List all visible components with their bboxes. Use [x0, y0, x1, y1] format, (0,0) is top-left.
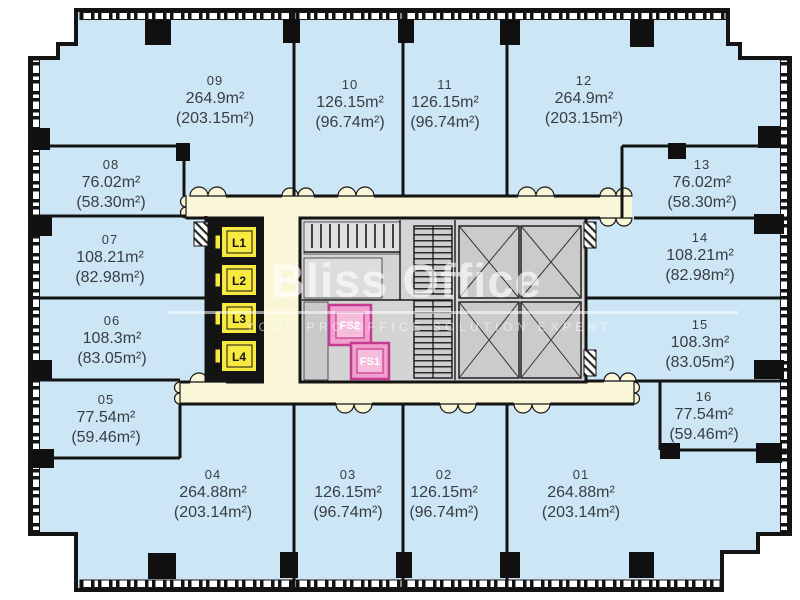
elevator-car-l1: L1: [215, 226, 257, 258]
fs2-label: FS2: [340, 320, 360, 332]
corridor-top: [186, 196, 632, 218]
l1-label: L1: [232, 236, 246, 250]
l3-label: L3: [232, 312, 246, 326]
hatched-column-bottom: [584, 350, 596, 376]
core-block: [300, 218, 596, 382]
hatched-column-top: [584, 222, 596, 248]
elevator-car-l2: L2: [215, 264, 257, 296]
elevator-car-l3: L3: [215, 302, 257, 334]
elevator-lobby: [264, 218, 300, 382]
floor-plan-drawing: FS2 FS1 L1 L2 L3: [0, 0, 800, 600]
toilet-area: [304, 222, 400, 254]
floor-plan-page: FS2 FS1 L1 L2 L3: [0, 0, 800, 600]
corridor-bottom: [180, 382, 634, 404]
l4-label: L4: [232, 350, 246, 364]
l2-label: L2: [232, 274, 246, 288]
elevator-car-l4: L4: [215, 340, 257, 372]
shaft-hatch-box: [194, 222, 208, 246]
fire-stair-fs1: FS1: [351, 343, 389, 379]
fire-stair-fs2: FS2: [329, 305, 371, 345]
fs1-label: FS1: [360, 356, 380, 368]
